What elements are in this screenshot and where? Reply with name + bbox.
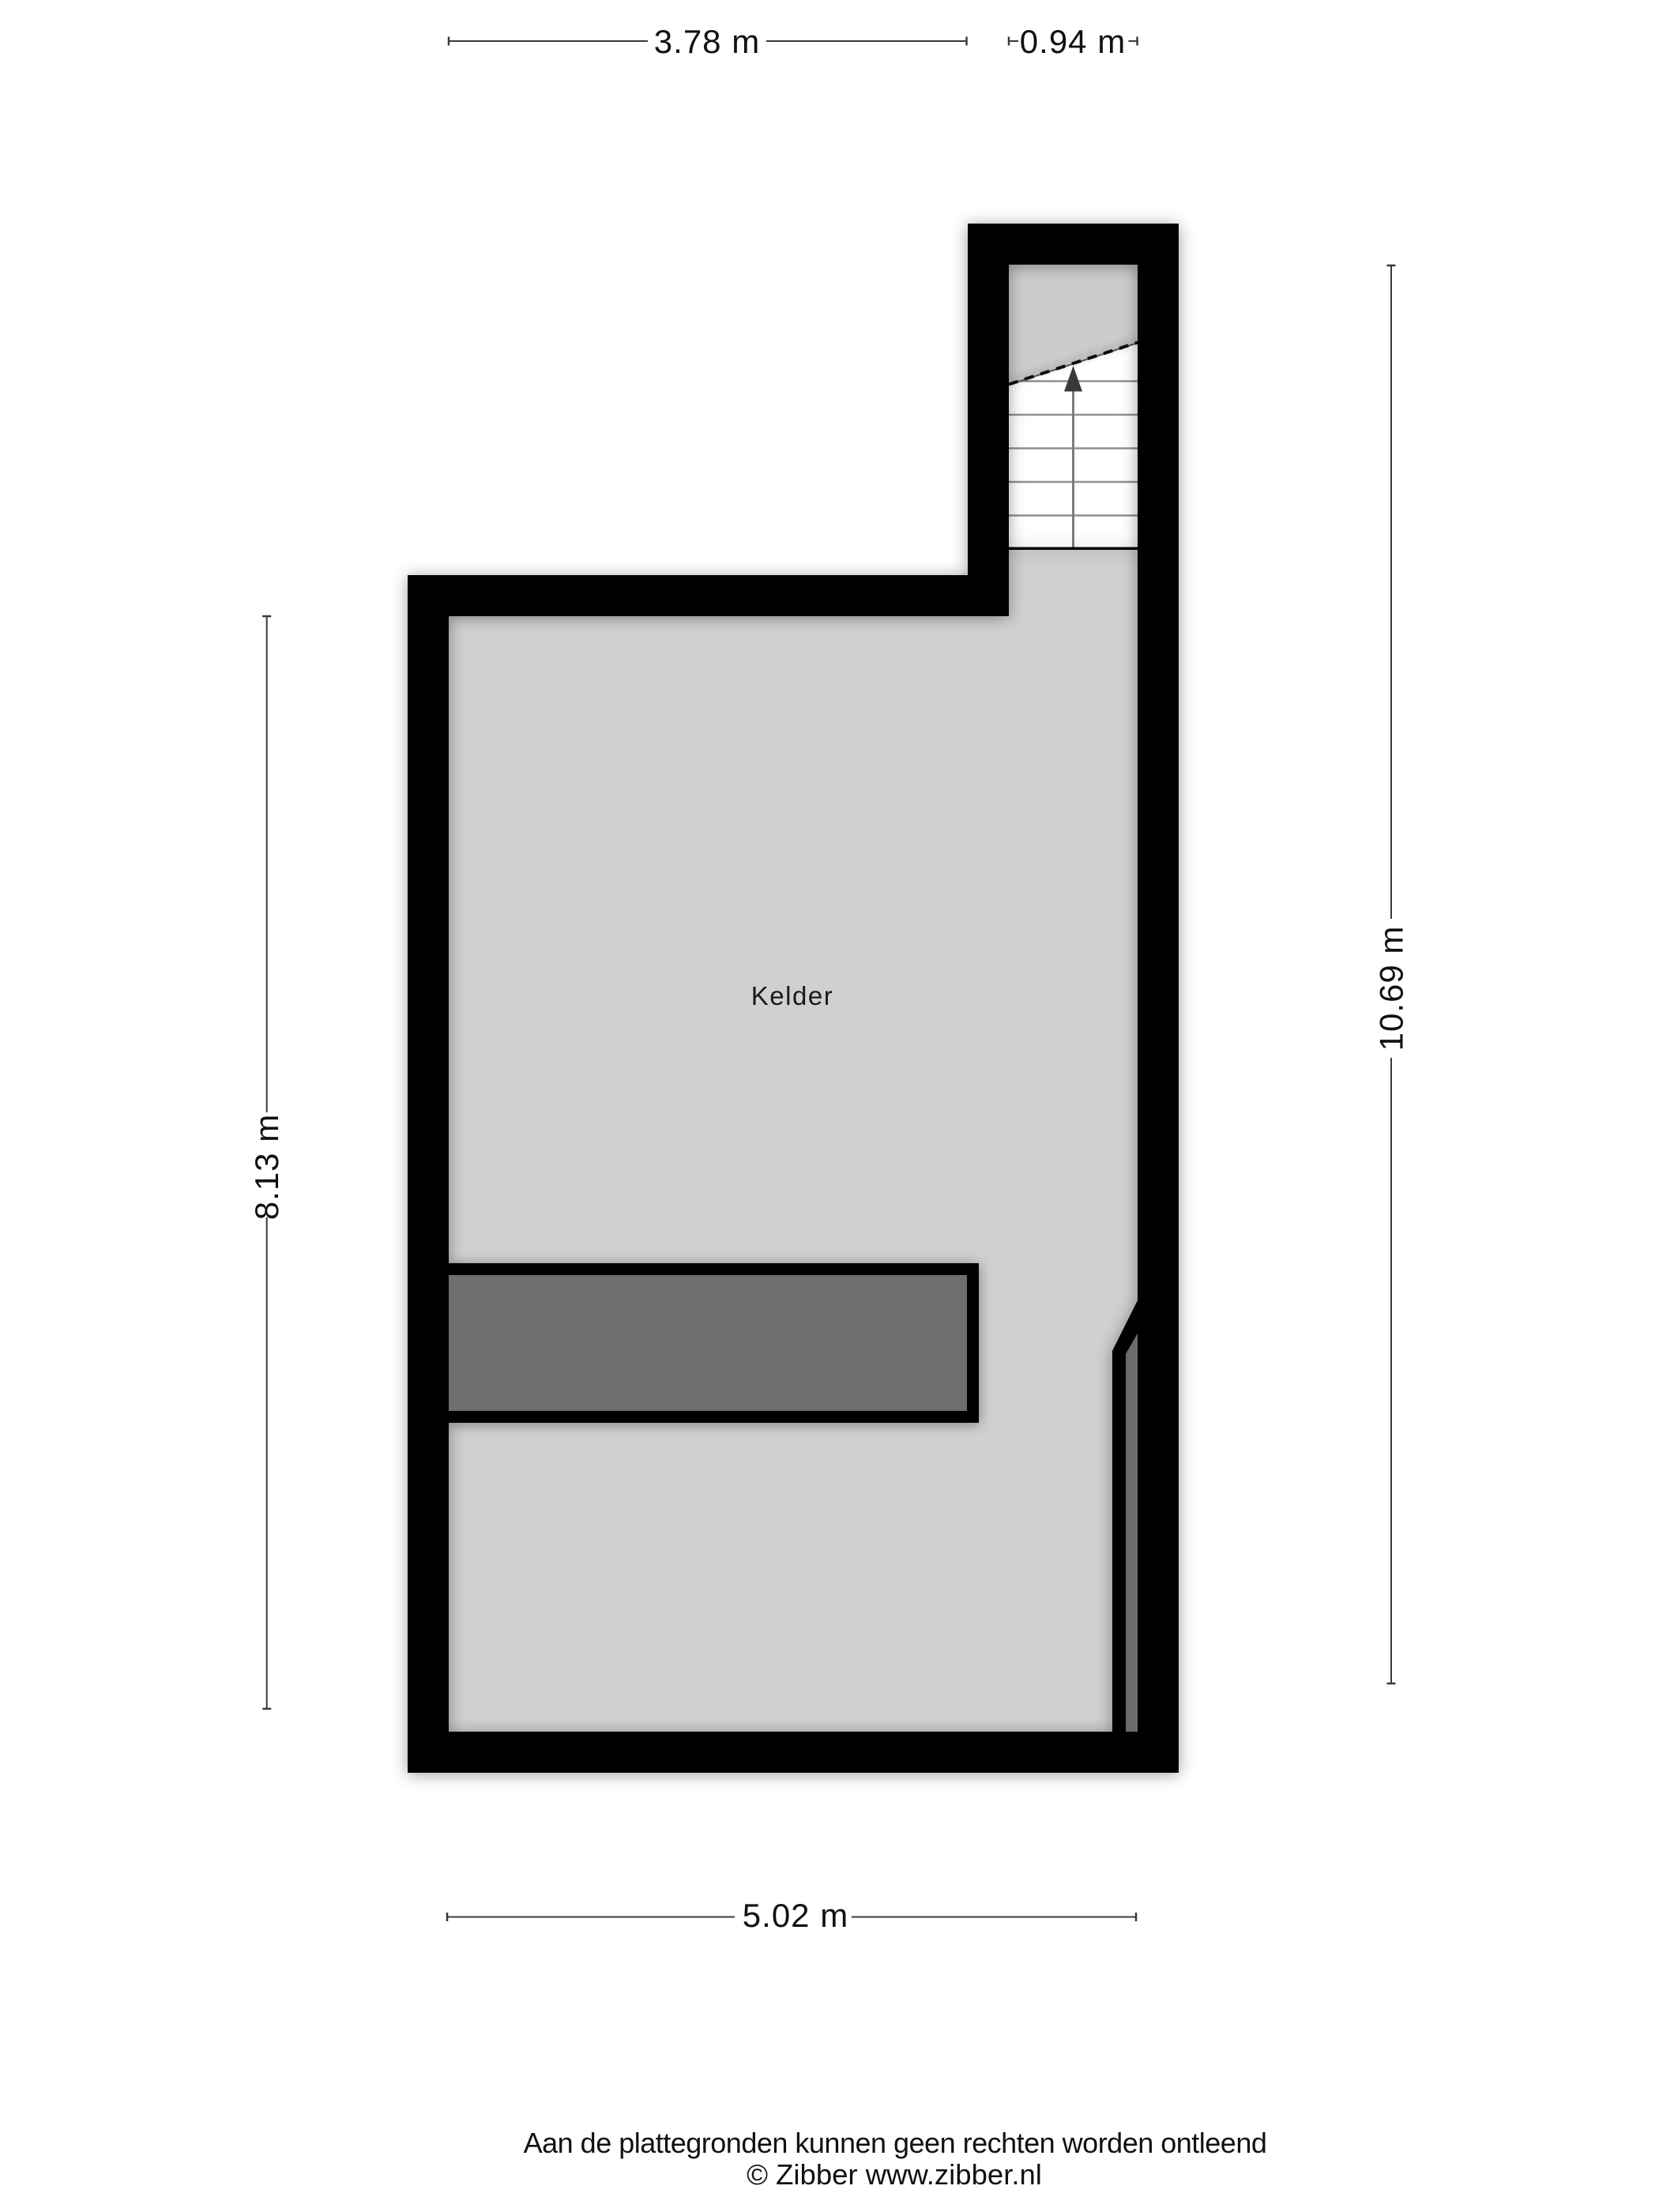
svg-text:10.69 m: 10.69 m <box>1373 926 1410 1051</box>
svg-text:8.13 m: 8.13 m <box>248 1114 285 1220</box>
svg-text:Kelder: Kelder <box>751 981 833 1010</box>
svg-text:5.02 m: 5.02 m <box>743 1897 848 1934</box>
svg-text:Aan de plattegronden kunnen ge: Aan de plattegronden kunnen geen rechten… <box>524 2127 1267 2159</box>
svg-text:0.94 m: 0.94 m <box>1020 23 1126 60</box>
svg-text:3.78 m: 3.78 m <box>654 23 760 60</box>
svg-text:© Zibber www.zibber.nl: © Zibber www.zibber.nl <box>747 2158 1042 2191</box>
